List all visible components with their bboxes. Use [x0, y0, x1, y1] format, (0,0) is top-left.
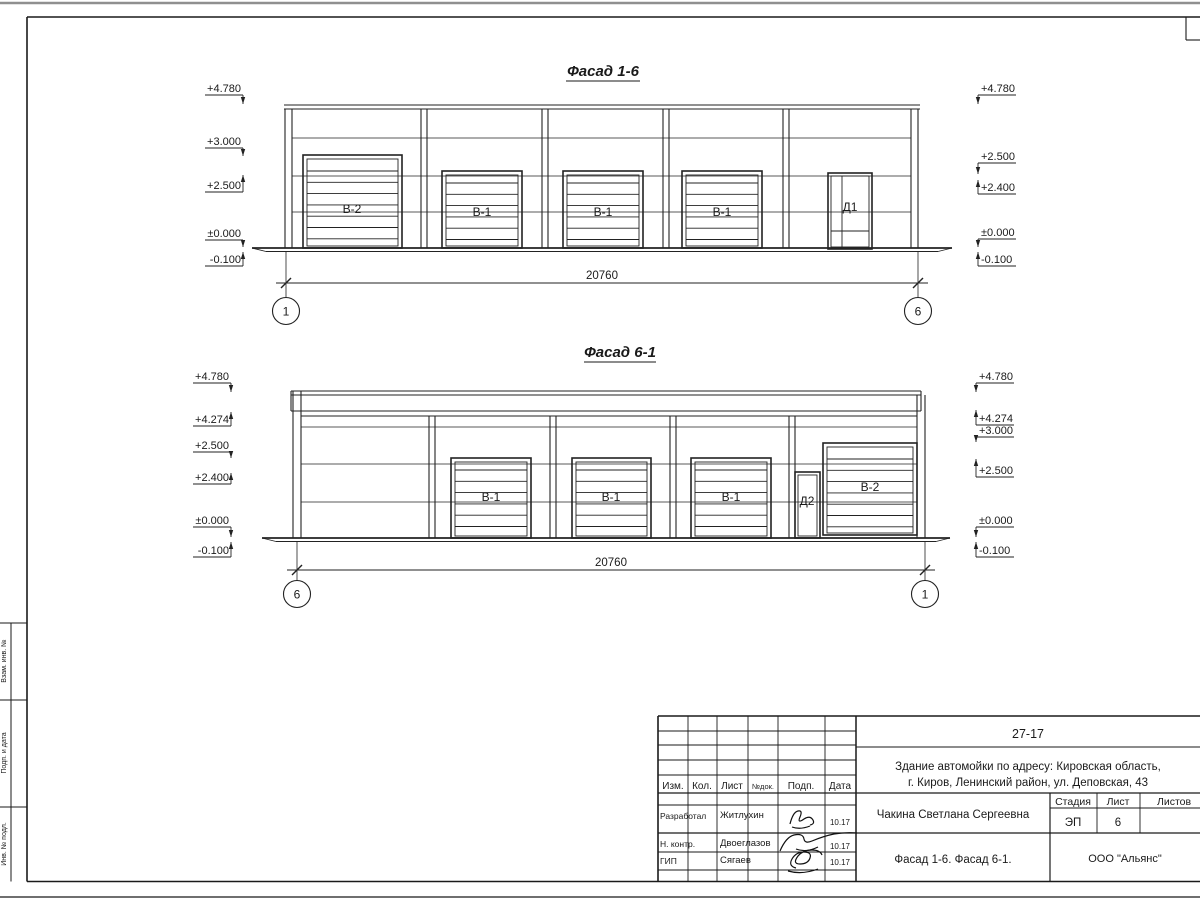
- gate-label: В-1: [713, 205, 732, 219]
- gate-label: В-1: [473, 205, 492, 219]
- side-stamp-label: Инв. № подл.: [1, 822, 8, 866]
- col-ndok: №док.: [752, 782, 774, 791]
- side-stamp: Взам. инв. № Подп. и дата Инв. № подл.: [0, 623, 27, 882]
- axis-label: 1: [283, 305, 290, 319]
- elevation-arrow: [229, 385, 233, 392]
- row-role: Н. контр.: [660, 839, 695, 849]
- elevation-mark: +4.274: [195, 414, 229, 426]
- stage-value: ЭП: [1065, 817, 1082, 829]
- project-address-line2: г. Киров, Ленинский район, ул. Деповская…: [908, 777, 1148, 789]
- signature-syagaev: [788, 850, 822, 873]
- elevation-mark: +2.500: [981, 151, 1015, 163]
- row-role: Разработал: [660, 811, 706, 821]
- drawing-canvas: Взам. инв. № Подп. и дата Инв. № подл. Ф…: [0, 0, 1200, 900]
- elevation-arrow: [976, 167, 980, 174]
- elevation-arrow: [976, 97, 980, 104]
- gate-label: В-1: [722, 490, 741, 504]
- row-name: Житлухин: [720, 810, 764, 821]
- facade-6-1-title: Фасад 6-1: [584, 344, 656, 361]
- elevation-mark: ±0.000: [979, 515, 1013, 527]
- elevation-mark: ±0.000: [981, 227, 1015, 239]
- doc-number: 27-17: [1012, 727, 1044, 741]
- elevation-arrow: [241, 175, 245, 182]
- facade-6-1-drawing: Фасад 6-1 В-1В-1В-1Д2В-22076061+4.780+4.…: [193, 344, 1014, 608]
- side-stamp-label: Взам. инв. №: [1, 639, 8, 682]
- gate-label: В-1: [602, 490, 621, 504]
- axis-label: 6: [294, 588, 301, 602]
- side-stamp-label: Подп. и дата: [1, 732, 8, 773]
- gate-label: Д2: [800, 494, 815, 508]
- elevation-mark: ±0.000: [207, 228, 241, 240]
- axis-label: 1: [922, 588, 929, 602]
- elevation-mark: +2.500: [979, 465, 1013, 477]
- dimension-text: 20760: [586, 270, 618, 282]
- gate-label: В-1: [482, 490, 501, 504]
- row-name: Сягаев: [720, 855, 751, 866]
- row-date: 10.17: [830, 858, 851, 867]
- elevation-mark: -0.100: [198, 545, 229, 557]
- signature-zhitluhin: [790, 811, 814, 828]
- axis-label: 6: [915, 305, 922, 319]
- elevation-arrow: [229, 451, 233, 458]
- elevation-arrow: [974, 459, 978, 466]
- elevation-arrow: [974, 542, 978, 549]
- col-kol: Кол.: [692, 781, 712, 792]
- col-list: Лист: [721, 781, 743, 792]
- elevation-arrow: [241, 149, 245, 156]
- sheet-title: Фасад 1-6. Фасад 6-1.: [894, 854, 1011, 866]
- client-name: Чакина Светлана Сергеевна: [877, 809, 1030, 821]
- elevation-mark: -0.100: [979, 545, 1010, 557]
- elevation-arrow: [229, 542, 233, 549]
- elevation-arrow: [241, 97, 245, 104]
- elevation-arrow: [974, 435, 978, 442]
- sheet-number: 6: [1115, 817, 1121, 829]
- elevation-arrow: [229, 473, 233, 480]
- sheets-label: Листов: [1157, 796, 1192, 808]
- elevation-arrow: [241, 240, 245, 247]
- facade-1-6-title: Фасад 1-6: [567, 63, 640, 80]
- company-name: ООО "Альянс": [1088, 853, 1162, 865]
- gate-label: Д1: [843, 200, 858, 214]
- gate-label: В-1: [594, 205, 613, 219]
- sheet-label: Лист: [1107, 796, 1130, 808]
- elevation-arrow: [241, 252, 245, 259]
- elevation-mark: ±0.000: [195, 515, 229, 527]
- elevation-mark: +2.400: [981, 182, 1015, 194]
- gate-label: В-2: [343, 202, 362, 216]
- row-date: 10.17: [830, 842, 851, 851]
- row-name: Двоеглазов: [720, 838, 771, 849]
- project-address-line1: Здание автомойки по адресу: Кировская об…: [895, 761, 1161, 773]
- elevation-arrow: [974, 385, 978, 392]
- elevation-mark: -0.100: [210, 254, 241, 266]
- col-data: Дата: [829, 781, 852, 792]
- elevation-mark: +2.500: [195, 440, 229, 452]
- dimension-text: 20760: [595, 557, 627, 569]
- elevation-mark: +2.500: [207, 180, 241, 192]
- elevation-arrow: [976, 252, 980, 259]
- elevation-mark: +4.780: [981, 83, 1015, 95]
- elevation-mark: +4.780: [979, 371, 1013, 383]
- stage-label: Стадия: [1055, 796, 1091, 808]
- gate-label: В-2: [861, 480, 880, 494]
- elevation-mark: +2.400: [195, 472, 229, 484]
- elevation-mark: +3.000: [979, 425, 1013, 437]
- elevation-mark: +3.000: [207, 136, 241, 148]
- elevation-arrow: [229, 530, 233, 537]
- elevation-arrow: [974, 410, 978, 417]
- facade-1-6-drawing: Фасад 1-6 В-2В-1В-1В-1Д12076016+4.780+3.…: [205, 63, 1016, 325]
- elevation-arrow: [974, 530, 978, 537]
- row-date: 10.17: [830, 818, 851, 827]
- elevation-mark: +4.274: [979, 413, 1013, 425]
- title-block: 27-17 Здание автомойки по адресу: Кировс…: [658, 716, 1200, 882]
- elevation-arrow: [976, 180, 980, 187]
- elevation-mark: +4.780: [195, 371, 229, 383]
- row-role: ГИП: [660, 856, 677, 866]
- drawing-sheet: Взам. инв. № Подп. и дата Инв. № подл. Ф…: [0, 0, 1200, 900]
- col-izm: Изм.: [662, 781, 683, 792]
- col-podp: Подп.: [788, 781, 815, 792]
- elevation-mark: +4.780: [207, 83, 241, 95]
- elevation-arrow: [976, 240, 980, 247]
- elevation-arrow: [229, 412, 233, 419]
- elevation-mark: -0.100: [981, 254, 1012, 266]
